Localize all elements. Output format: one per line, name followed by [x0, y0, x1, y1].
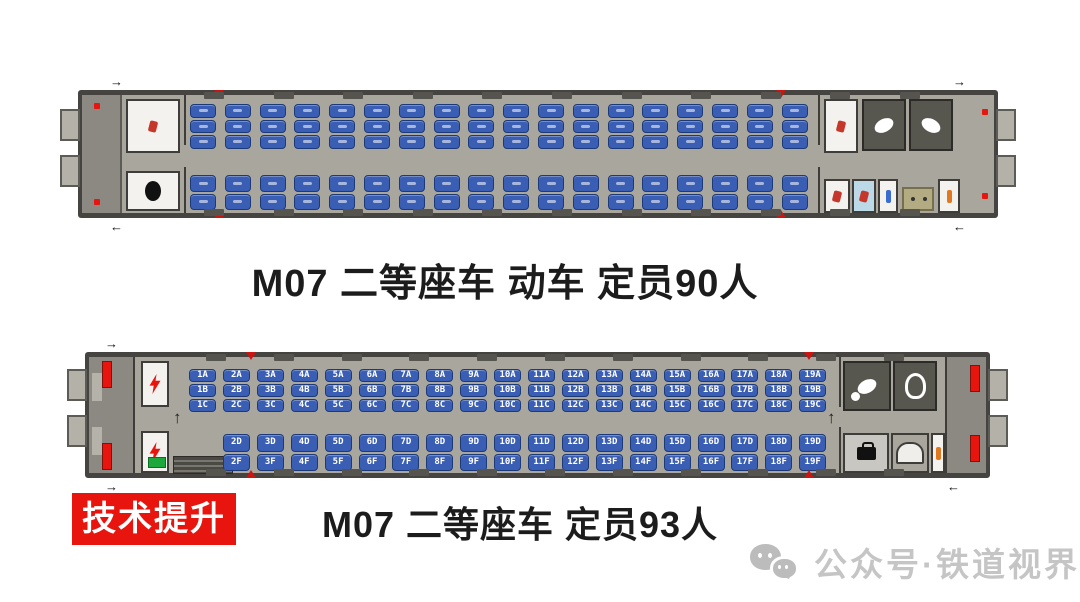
seat-group: 1A1B1C	[189, 368, 216, 413]
wall-frame	[884, 354, 904, 361]
seat-group	[364, 103, 390, 150]
seat-label: 17C	[737, 401, 753, 410]
seat-14A: 14A	[630, 369, 657, 382]
seat	[434, 135, 460, 149]
seat	[782, 135, 808, 149]
seat-label: 15F	[669, 458, 685, 467]
seat-label: 16D	[703, 438, 719, 447]
direction-arrow-icon: ←	[947, 480, 960, 493]
seat-2D: 2D	[223, 434, 250, 452]
seat-11B: 11B	[528, 384, 555, 397]
knob-icon	[911, 197, 915, 201]
seat	[712, 104, 738, 118]
seat-group	[364, 174, 390, 211]
seat-group: 4D4F	[291, 433, 318, 472]
seat-group: 6D6F	[359, 433, 386, 472]
seat-7D: 7D	[392, 434, 419, 452]
seat-group: 16D16F	[698, 433, 725, 472]
end-window	[92, 427, 102, 455]
seat-17D: 17D	[731, 434, 758, 452]
bottom-car-caption: M07 二等座车 定员93人	[265, 496, 775, 548]
seat-group	[434, 103, 460, 150]
seat	[573, 120, 599, 134]
seat-11A: 11A	[528, 369, 555, 382]
seat-label: 18A	[771, 371, 787, 380]
seat-group: 4A4B4C	[291, 368, 318, 413]
seat	[468, 135, 494, 149]
wall-frame	[900, 209, 920, 216]
seat-label: 2D	[231, 438, 242, 447]
seat-group	[747, 103, 773, 150]
service-cabinet	[126, 99, 180, 153]
seat-group	[399, 103, 425, 150]
accessible-toilet-compartment	[893, 361, 937, 411]
seat-group	[608, 103, 634, 150]
seat	[712, 135, 738, 149]
seat-group: 7A7B7C	[392, 368, 419, 413]
wall-frame	[343, 209, 363, 216]
wall-frame	[342, 354, 362, 361]
seat-4D: 4D	[291, 434, 318, 452]
seat-group	[225, 174, 251, 211]
seat-group: 10D10F	[494, 433, 521, 472]
seat-10A: 10A	[494, 369, 521, 382]
seat-label: 15A	[669, 371, 685, 380]
seat-label: 1A	[197, 371, 208, 380]
door-marker	[94, 103, 100, 109]
seat-label: 1C	[197, 401, 208, 410]
seat-label: 6F	[367, 458, 378, 467]
seat-16C: 16C	[698, 399, 725, 412]
seat	[642, 175, 668, 192]
seat-label: 16B	[703, 386, 719, 395]
wall-frame	[343, 92, 363, 99]
wall-frame	[816, 354, 836, 361]
seat-2C: 2C	[223, 399, 250, 412]
seat-12F: 12F	[562, 454, 589, 472]
seat-label: 11A	[533, 371, 549, 380]
seat-label: 14D	[635, 438, 651, 447]
seat-group	[225, 103, 251, 150]
seat	[608, 194, 634, 211]
seat-label: 5D	[333, 438, 344, 447]
seat-group: 14D14F	[630, 433, 657, 472]
seat-group: 17D17F	[731, 433, 758, 472]
gangway-right	[996, 155, 1016, 187]
seat-label: 14F	[635, 458, 651, 467]
seat	[364, 120, 390, 134]
seat-group	[434, 174, 460, 211]
top-car-caption: M07 二等座车 动车 定员90人	[150, 252, 860, 307]
seat-label: 3D	[265, 438, 276, 447]
seat-16D: 16D	[698, 434, 725, 452]
seat-group	[642, 174, 668, 211]
seat-9C: 9C	[460, 399, 487, 412]
seat	[712, 120, 738, 134]
seat-1A: 1A	[189, 369, 216, 382]
door-handle-red	[102, 361, 112, 388]
seat-label: 14C	[635, 401, 651, 410]
seat-label: 9C	[468, 401, 479, 410]
seat-group: 13A13B13C	[596, 368, 623, 413]
gangway-left	[67, 415, 87, 447]
seat-label: 15D	[669, 438, 685, 447]
bubble-eye	[758, 553, 762, 558]
seat-group	[329, 103, 355, 150]
seat	[294, 120, 320, 134]
seat-group	[712, 174, 738, 211]
seat-group: 2D2F	[223, 433, 250, 472]
seat-label: 10B	[499, 386, 515, 395]
seat	[747, 194, 773, 211]
seat-7B: 7B	[392, 384, 419, 397]
seat-8B: 8B	[426, 384, 453, 397]
seat-label: 14B	[635, 386, 651, 395]
seat	[190, 194, 216, 211]
wall-frame	[477, 354, 497, 361]
seat-3D: 3D	[257, 434, 284, 452]
seat	[608, 120, 634, 134]
seat-label: 1B	[197, 386, 208, 395]
seat	[747, 104, 773, 118]
wall-frame	[816, 469, 836, 476]
end-window	[92, 373, 102, 401]
seat-label: 13B	[601, 386, 617, 395]
seat	[225, 135, 251, 149]
seat	[608, 175, 634, 192]
seat-group	[782, 174, 808, 211]
seat-14F: 14F	[630, 454, 657, 472]
seat-12C: 12C	[562, 399, 589, 412]
seat-17B: 17B	[731, 384, 758, 397]
seat-label: 17B	[737, 386, 753, 395]
wall-frame	[206, 354, 226, 361]
seat-15D: 15D	[664, 434, 691, 452]
seat-label: 4F	[299, 458, 310, 467]
seat-17A: 17A	[731, 369, 758, 382]
seat-group: 2A2B2C	[223, 368, 250, 413]
seat-group	[573, 103, 599, 150]
washstand-area	[891, 433, 929, 473]
wall-frame	[884, 469, 904, 476]
water-cabinet	[852, 179, 876, 213]
seat	[399, 175, 425, 192]
seat-group	[190, 103, 216, 150]
direction-arrow-icon: →	[953, 75, 966, 88]
seat-5D: 5D	[325, 434, 352, 452]
seat-label: 16F	[703, 458, 719, 467]
equipment-mark-icon	[832, 190, 842, 203]
seat-10F: 10F	[494, 454, 521, 472]
seat-label: 16C	[703, 401, 719, 410]
seat	[364, 135, 390, 149]
door-indicator-icon	[246, 470, 256, 478]
seat-group: 9A9B9C	[460, 368, 487, 413]
wall-frame	[681, 354, 701, 361]
seat-12B: 12B	[562, 384, 589, 397]
seat	[573, 135, 599, 149]
seat-19A: 19A	[799, 369, 826, 382]
seat-group: 3D3F	[257, 433, 284, 472]
bubble-eye	[778, 565, 781, 569]
seat	[399, 120, 425, 134]
seat-label: 6A	[367, 371, 378, 380]
seat-group: 9D9F	[460, 433, 487, 472]
suitcase-icon	[857, 447, 876, 460]
seat-label: 18F	[771, 458, 787, 467]
seat	[573, 104, 599, 118]
seat	[503, 175, 529, 192]
seat-label: 3B	[265, 386, 276, 395]
door-marker	[982, 109, 988, 115]
direction-arrow-icon: →	[110, 75, 123, 88]
seat	[260, 135, 286, 149]
seat	[538, 194, 564, 211]
toilet-compartment	[862, 99, 906, 151]
wall-frame	[552, 92, 572, 99]
seat	[468, 120, 494, 134]
wall-frame	[413, 92, 433, 99]
seat	[677, 194, 703, 211]
seat-4F: 4F	[291, 454, 318, 472]
wall-frame	[613, 354, 633, 361]
seat	[294, 135, 320, 149]
watermark: 公众号·铁道视界	[748, 538, 1080, 586]
wall-frame	[409, 469, 429, 476]
toilet-compartment	[126, 171, 180, 211]
seat-group	[329, 174, 355, 211]
wall-frame	[613, 469, 633, 476]
door-handle-red	[102, 443, 112, 470]
seat-group	[260, 103, 286, 150]
seat-label: 18B	[771, 386, 787, 395]
direction-arrow-icon: ←	[110, 220, 123, 233]
service-cabinet	[824, 179, 850, 213]
gangway-left	[60, 109, 80, 141]
wall-frame	[748, 354, 768, 361]
seat-14D: 14D	[630, 434, 657, 452]
wall-frame	[274, 209, 294, 216]
seat-11D: 11D	[528, 434, 555, 452]
seat-15B: 15B	[664, 384, 691, 397]
end-section-right	[945, 357, 986, 473]
seat	[677, 175, 703, 192]
seat-3C: 3C	[257, 399, 284, 412]
seat-group	[399, 174, 425, 211]
seat-6F: 6F	[359, 454, 386, 472]
gangway-left	[60, 155, 80, 187]
seat	[434, 120, 460, 134]
seat-label: 11C	[533, 401, 549, 410]
seat	[329, 104, 355, 118]
seat-18C: 18C	[765, 399, 792, 412]
seat	[538, 135, 564, 149]
dispenser-panel	[931, 433, 945, 473]
seat-9D: 9D	[460, 434, 487, 452]
dispenser-icon	[936, 447, 941, 460]
seat-9A: 9A	[460, 369, 487, 382]
seat	[190, 104, 216, 118]
seat-label: 5C	[333, 401, 344, 410]
aisle-arrow-icon: ↑	[173, 409, 182, 426]
seat-label: 13C	[601, 401, 617, 410]
seat	[364, 175, 390, 192]
seat-label: 19A	[805, 371, 821, 380]
seat-19B: 19B	[799, 384, 826, 397]
seat-label: 17D	[737, 438, 753, 447]
seat-8A: 8A	[426, 369, 453, 382]
door-indicator-icon	[246, 352, 256, 360]
seat	[677, 120, 703, 134]
bubble-eye	[768, 553, 772, 558]
seat-13D: 13D	[596, 434, 623, 452]
seat	[573, 175, 599, 192]
seat-label: 3F	[265, 458, 276, 467]
seat-10B: 10B	[494, 384, 521, 397]
wall-frame	[274, 92, 294, 99]
seat-label: 2A	[231, 371, 242, 380]
seat	[260, 175, 286, 192]
seat-group: 18A18B18C	[765, 368, 792, 413]
door-indicator-icon	[804, 470, 814, 478]
seat-group: 8D8F	[426, 433, 453, 472]
seat	[329, 194, 355, 211]
seat-label: 18D	[771, 438, 787, 447]
seat-group	[782, 103, 808, 150]
seat-label: 8B	[434, 386, 445, 395]
seat-10D: 10D	[494, 434, 521, 452]
seat-7C: 7C	[392, 399, 419, 412]
partition	[184, 167, 186, 213]
seat-label: 17A	[737, 371, 753, 380]
seat-group: 15A15B15C	[664, 368, 691, 413]
gangway-right	[996, 109, 1016, 141]
seat-label: 11B	[533, 386, 549, 395]
seat	[260, 104, 286, 118]
seat-group: 17A17B17C	[731, 368, 758, 413]
seat	[712, 194, 738, 211]
seat	[747, 175, 773, 192]
seat-13C: 13C	[596, 399, 623, 412]
seat	[468, 104, 494, 118]
emu-car-diagram: → ← → ←	[78, 90, 998, 218]
seat	[642, 120, 668, 134]
seat-label: 12F	[567, 458, 583, 467]
seat	[538, 104, 564, 118]
seat	[329, 120, 355, 134]
seat-label: 19B	[805, 386, 821, 395]
seat-label: 3C	[265, 401, 276, 410]
seat	[782, 175, 808, 192]
seat-group: 14A14B14C	[630, 368, 657, 413]
seat	[747, 135, 773, 149]
seat-group	[712, 103, 738, 150]
seat-label: 13F	[601, 458, 617, 467]
seat-2A: 2A	[223, 369, 250, 382]
seat	[399, 104, 425, 118]
seat-group: 13D13F	[596, 433, 623, 472]
seat-label: 14A	[635, 371, 651, 380]
wall-frame	[206, 469, 226, 476]
toilet-compartment	[909, 99, 953, 151]
seat-label: 9F	[468, 458, 479, 467]
seat-group	[677, 174, 703, 211]
washstand-icon	[896, 442, 924, 464]
seat-15C: 15C	[664, 399, 691, 412]
seat-group: 11A11B11C	[528, 368, 555, 413]
electrical-cabinet	[141, 431, 169, 473]
seat-label: 4B	[299, 386, 310, 395]
seat-18D: 18D	[765, 434, 792, 452]
service-cabinet	[824, 99, 858, 153]
seat-label: 6C	[367, 401, 378, 410]
seat-19C: 19C	[799, 399, 826, 412]
seat-label: 8F	[434, 458, 445, 467]
seat-group: 12D12F	[562, 433, 589, 472]
equipment-mark-icon	[859, 190, 869, 203]
door-handle-red	[970, 435, 980, 462]
seat	[642, 194, 668, 211]
seat-group: 15D15F	[664, 433, 691, 472]
seat	[434, 194, 460, 211]
wechat-icon	[748, 540, 802, 584]
seat-2B: 2B	[223, 384, 250, 397]
seat-label: 7A	[400, 371, 411, 380]
gangway-right	[988, 369, 1008, 401]
seat	[712, 175, 738, 192]
dispenser-icon	[947, 190, 952, 203]
seat	[503, 120, 529, 134]
seat-group: 10A10B10C	[494, 368, 521, 413]
seat-group: 11D11F	[528, 433, 555, 472]
seat-2F: 2F	[223, 454, 250, 472]
wall-frame	[681, 469, 701, 476]
seat-9B: 9B	[460, 384, 487, 397]
seat	[399, 135, 425, 149]
seat-6A: 6A	[359, 369, 386, 382]
seat-group	[503, 174, 529, 211]
watermark-text: 公众号·铁道视界	[814, 538, 1080, 586]
toilet-icon	[145, 181, 161, 201]
seat	[573, 194, 599, 211]
wall-frame	[545, 469, 565, 476]
seat	[399, 194, 425, 211]
seat	[503, 194, 529, 211]
train-layout-diagram: → ← → ← M07 二等座车 动车 定员90人	[0, 0, 1080, 602]
seat	[190, 120, 216, 134]
seat-5B: 5B	[325, 384, 352, 397]
seat	[260, 120, 286, 134]
partition	[839, 427, 841, 473]
seat-18B: 18B	[765, 384, 792, 397]
emu-car-interior: → ← → ←	[82, 95, 994, 213]
gangway-right	[988, 415, 1008, 447]
seat-6B: 6B	[359, 384, 386, 397]
seat-group: 8A8B8C	[426, 368, 453, 413]
seat-label: 17F	[737, 458, 753, 467]
toilet-compartment	[843, 361, 891, 411]
seat	[329, 175, 355, 192]
direction-arrow-icon: →	[105, 337, 118, 350]
wall-frame	[482, 209, 502, 216]
knob-icon	[923, 197, 927, 201]
seat-label: 10C	[499, 401, 515, 410]
seat	[190, 135, 216, 149]
seat	[677, 135, 703, 149]
wall-frame	[761, 209, 781, 216]
seat-label: 12C	[567, 401, 583, 410]
seat-group: 7D7F	[392, 433, 419, 472]
